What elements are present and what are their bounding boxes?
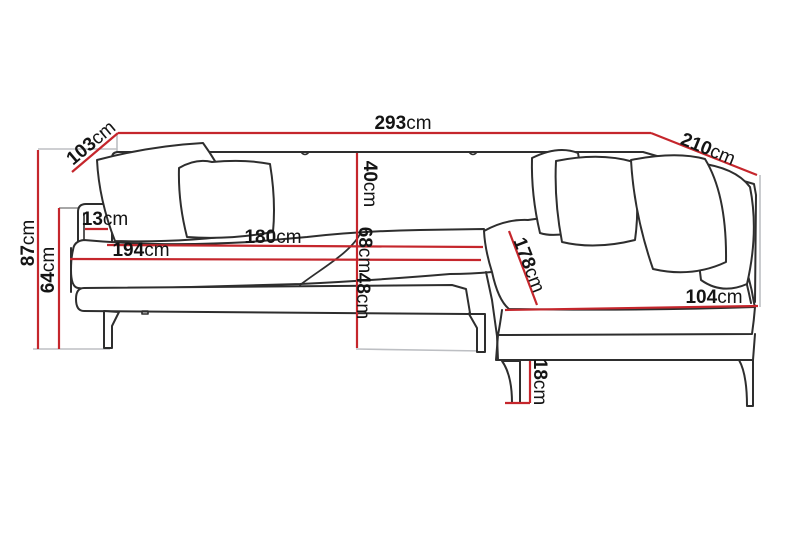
chaise-cushion-front [498,307,755,335]
label-seat-cushion-width: 180cm [244,227,301,248]
label-armrest-width: 13cm [82,209,128,230]
sofa-mid-leg [469,314,485,352]
label-leg-height: 18cm [530,359,551,405]
pillow-middle-front [556,157,638,246]
extension-floor-mid [356,349,483,351]
sofa-left-leg [104,311,119,348]
chaise-base [496,334,755,360]
sofa-back-leg-mark [142,311,148,314]
diagram-canvas: 293cm 103cm 210cm 87cm 64cm 13cm 180cm 1… [0,0,800,533]
label-chaise-width: 104cm [685,287,742,308]
sofa-dimension-diagram: 293cm 103cm 210cm 87cm 64cm 13cm 180cm 1… [0,0,800,533]
label-back-seat-height: 68cm [355,227,376,273]
label-armrest-height: 64cm [38,247,59,293]
sofa-base-platform [76,285,470,314]
label-interior-width: 194cm [112,240,169,261]
sofa-outline [71,143,756,406]
label-total-width: 293cm [374,113,431,134]
label-seat-height: 48cm [353,273,374,319]
label-total-height: 87cm [18,220,39,266]
chaise-left-leg [502,361,520,403]
chaise-right-leg [739,360,753,406]
label-backrest-height: 40cm [360,161,381,207]
